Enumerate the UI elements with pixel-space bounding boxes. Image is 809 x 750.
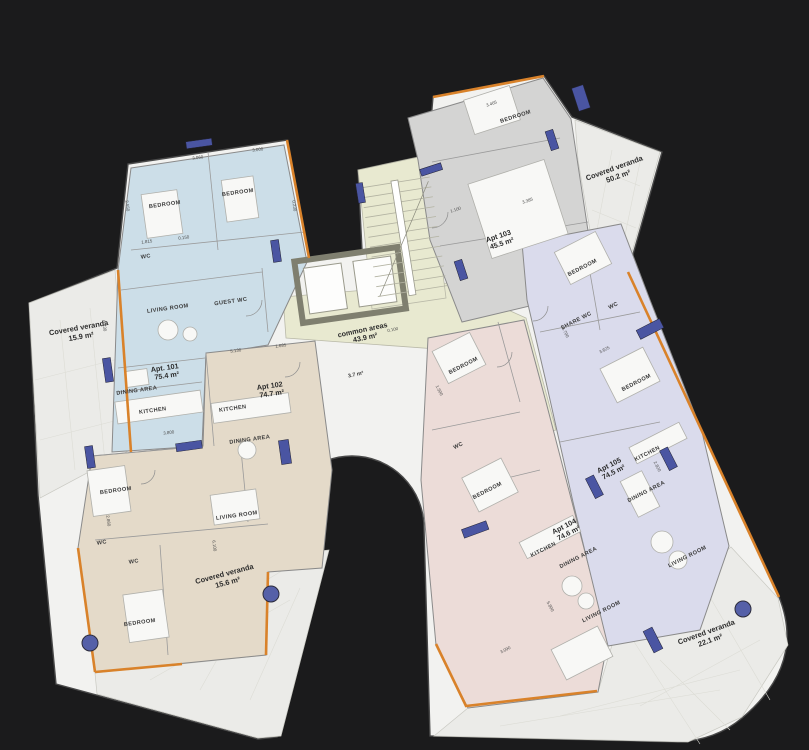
bed (221, 176, 259, 222)
floor-plan-image: BEDROOM BEDROOM WC GUEST WC LIVING ROOM … (0, 0, 809, 750)
dining-table (562, 576, 582, 596)
column (263, 586, 279, 602)
elevator-cab-left (303, 263, 347, 314)
column (82, 635, 98, 651)
table (651, 531, 673, 553)
floor-plan-svg: BEDROOM BEDROOM WC GUEST WC LIVING ROOM … (0, 0, 809, 750)
bed (123, 589, 169, 642)
column (735, 601, 751, 617)
plant (183, 327, 197, 341)
elevator-cab-right (353, 256, 397, 307)
plant (578, 593, 594, 609)
table (158, 320, 178, 340)
dining-table (125, 369, 149, 388)
bed (141, 190, 183, 239)
